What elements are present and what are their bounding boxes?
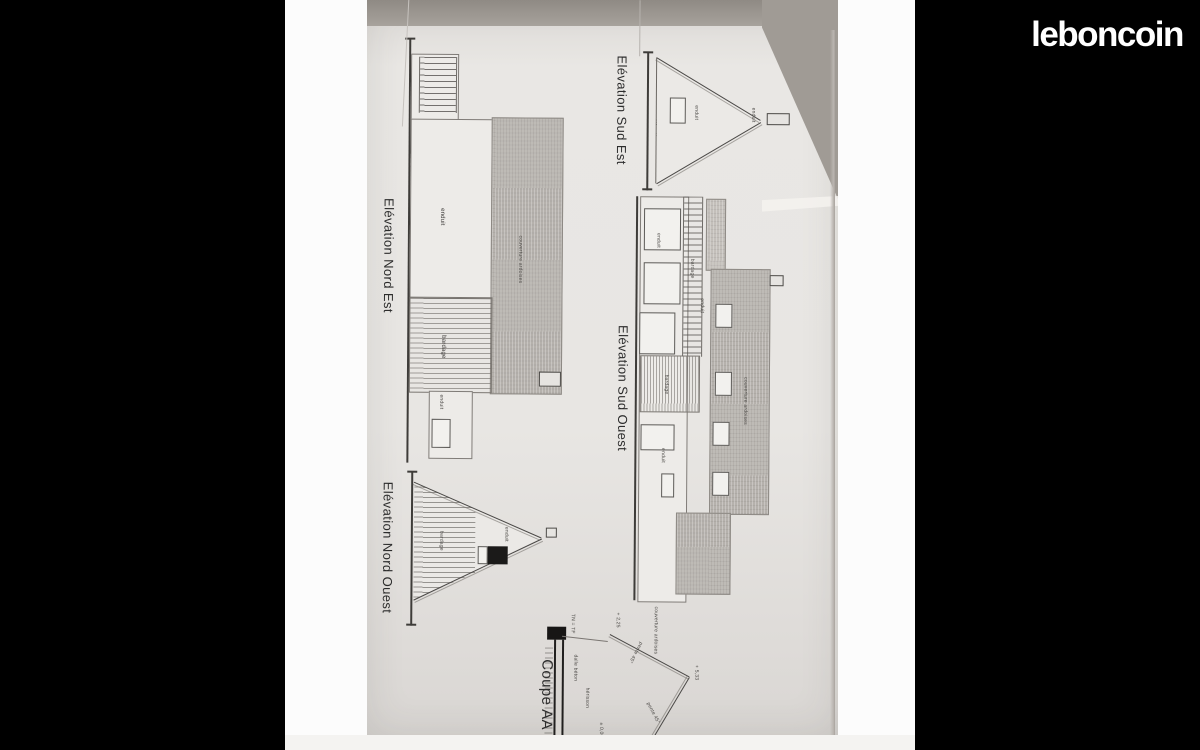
title-elevation-sud-ouest: Elévation Sud Ouest (616, 325, 630, 451)
next-content-row (285, 735, 915, 750)
ground-tick (643, 51, 653, 53)
label-enduit: enduit (439, 208, 445, 226)
label-bardage: bardage (663, 375, 668, 395)
label-enduit: enduit (693, 105, 698, 120)
label-enduit: enduit (655, 233, 660, 248)
section-roof-upper (610, 634, 690, 677)
label-enduit: enduit (660, 448, 665, 463)
herisson-hatch (544, 648, 553, 735)
window (639, 312, 675, 354)
label-couverture: couverture ardoises (517, 236, 522, 284)
label-enduit: enduit (699, 298, 704, 313)
drawing-sheet: Elévation Sud Est TN = TF enduit enduit … (367, 0, 838, 735)
roof-window (712, 472, 729, 496)
window (644, 208, 681, 250)
label-pente: pente 45° (645, 702, 660, 725)
bardage-cladding (409, 297, 493, 394)
roof-slope-lower (675, 513, 731, 595)
title-elevation-nord-est: Elévation Nord Est (382, 198, 396, 313)
section-roof-lower (648, 677, 690, 735)
label-enduit: enduit (503, 527, 508, 542)
label-bardage: bardage (440, 335, 446, 358)
leboncoin-logo[interactable]: leboncoin (1022, 12, 1192, 58)
section-wall-cap (547, 627, 566, 640)
label-bardage: bardage (689, 259, 694, 279)
dimension-line (562, 636, 608, 642)
section-wall (553, 640, 564, 735)
adjacent-page-right (838, 0, 915, 750)
label-couverture: couverture ardoises (742, 377, 747, 425)
ladder-window (419, 57, 457, 113)
label-bardage: bardage (438, 531, 443, 551)
ground-tick (406, 624, 416, 626)
ground-tick (407, 471, 417, 473)
adjacent-page-left (285, 0, 367, 750)
label-enduit: enduit (750, 108, 755, 123)
label-enduit: enduit (438, 394, 443, 409)
roof-window (715, 304, 732, 328)
chimney (539, 372, 561, 387)
window (640, 424, 674, 450)
roof-slope (490, 117, 564, 394)
paper-fold (639, 0, 640, 56)
label-couverture: couverture ardoises (652, 606, 657, 654)
chimney (770, 275, 784, 286)
chimney (767, 113, 790, 125)
label-herisson: hérisson (584, 688, 589, 709)
window (661, 473, 674, 497)
ground-tick (642, 188, 652, 190)
label-dalle-beton: dalle béton (572, 654, 577, 681)
label-level-zero: ± 0,00 (598, 722, 603, 735)
label-level-eaves: + 2,25 (615, 612, 620, 627)
listing-photo-architectural-plan[interactable]: Elévation Sud Est TN = TF enduit enduit … (367, 0, 838, 735)
title-elevation-sud-est: Elévation Sud Est (615, 55, 629, 165)
roof-band (706, 199, 727, 271)
bardage-cladding (640, 355, 700, 412)
chimney (546, 528, 557, 538)
door (478, 546, 488, 564)
roof-window (715, 372, 732, 396)
window (643, 262, 680, 304)
paper-edge-right (830, 30, 835, 735)
facade-wall (409, 119, 493, 300)
gallery-viewer: Elévation Sud Est TN = TF enduit enduit … (0, 0, 1200, 750)
window (431, 419, 450, 448)
roof-window (712, 422, 729, 446)
door-dark (488, 546, 508, 564)
title-elevation-nord-ouest: Elévation Nord Ouest (381, 482, 395, 614)
window (670, 97, 686, 123)
label-tn-tf: TN = TF (570, 614, 575, 634)
label-level-ridge: + 5,33 (693, 665, 698, 680)
ground-line (646, 52, 649, 190)
ground-line (410, 472, 413, 626)
